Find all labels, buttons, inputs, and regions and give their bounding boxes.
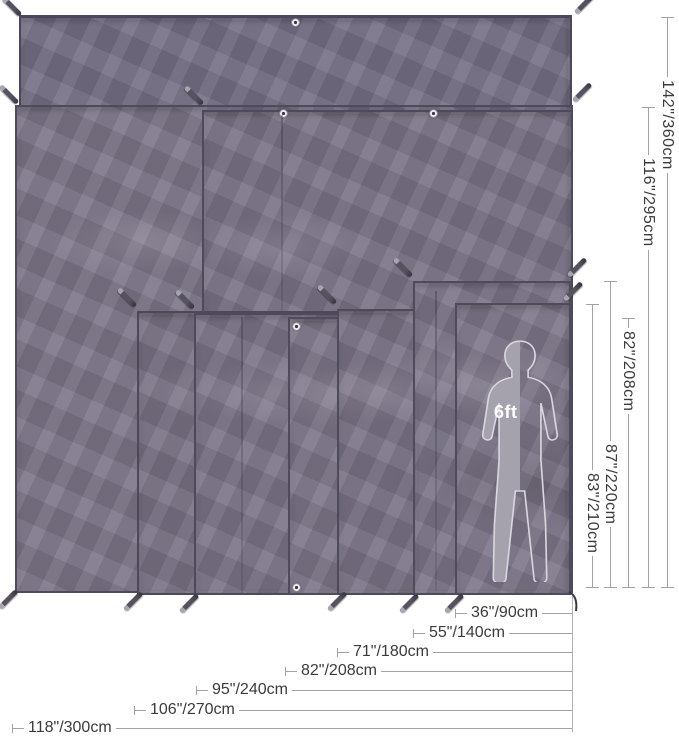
tent-stake-icon (399, 593, 420, 614)
dimension-line-width-140: 55"/140cm (413, 633, 572, 634)
tent-stake-icon (444, 593, 465, 614)
dimension-line-width-300: 118"/300cm (12, 728, 572, 729)
dimension-line-width-208: 82"/208cm (285, 671, 572, 672)
tent-stake-icon (574, 0, 595, 15)
tent-stake-icon (572, 82, 593, 103)
dimension-line-height-220: 87"/220cm (610, 281, 611, 588)
height-dimension-label: 116"/295cm (639, 155, 657, 250)
fabric-crease (281, 115, 283, 311)
dimension-line-height-208: 82"/208cm (628, 318, 629, 588)
tick (413, 629, 414, 638)
tick (285, 667, 286, 676)
tent-stake-icon (0, 589, 18, 610)
dimension-reference-line (572, 596, 573, 732)
dimension-line-width-270: 106"/270cm (134, 710, 572, 711)
width-dimension-label: 106"/270cm (146, 701, 239, 719)
tick (337, 648, 338, 657)
tick (622, 318, 635, 319)
width-dimension-label: 55"/140cm (425, 624, 509, 642)
tick (661, 17, 674, 18)
width-dimension-label: 95"/240cm (208, 681, 292, 699)
tick (642, 587, 655, 588)
tick (586, 304, 599, 305)
dimension-line-width-180: 71"/180cm (337, 652, 572, 653)
tent-stake-icon (123, 591, 144, 612)
tarp-size-comparison-diagram: 6ft 142"/360cm 116"/295cm 82"/208cm 87"/… (0, 0, 679, 743)
grommet-icon (292, 583, 301, 592)
width-dimension-label: 118"/300cm (24, 719, 116, 737)
grommet-icon (292, 322, 301, 331)
tick (604, 587, 617, 588)
human-silhouette (477, 338, 563, 582)
tick (661, 587, 674, 588)
tent-stake-icon (0, 84, 19, 105)
height-dimension-label: 82"/208cm (619, 328, 637, 414)
tent-stake-icon (179, 593, 200, 614)
tick (604, 281, 617, 282)
fabric-crease (241, 317, 243, 593)
width-dimension-label: 71"/180cm (349, 643, 433, 661)
tent-stake-icon (2, 0, 23, 17)
dimension-line-height-210: 83"/210cm (592, 304, 593, 588)
height-dimension-label: 87"/220cm (601, 441, 619, 527)
height-dimension-label: 83"/210cm (583, 470, 601, 556)
width-dimension-label: 82"/208cm (297, 662, 381, 680)
dimension-line-height-295: 116"/295cm (648, 107, 649, 588)
grommet-icon (291, 18, 300, 27)
tick (196, 686, 197, 695)
grommet-icon (429, 109, 438, 118)
fabric-crease (435, 291, 437, 591)
tick (455, 609, 456, 618)
tick (622, 587, 635, 588)
height-dimension-label: 142"/360cm (658, 77, 676, 173)
figure-height-label: 6ft (494, 402, 518, 423)
corner-cord-icon (568, 591, 584, 613)
tick (134, 706, 135, 715)
width-dimension-label: 36"/90cm (467, 604, 542, 622)
tick (642, 107, 655, 108)
tick (586, 587, 599, 588)
dimension-line-height-360: 142"/360cm (667, 17, 668, 588)
dimension-line-width-240: 95"/240cm (196, 690, 572, 691)
dimension-line-width-90: 36"/90cm (455, 613, 572, 614)
tick (12, 724, 13, 733)
